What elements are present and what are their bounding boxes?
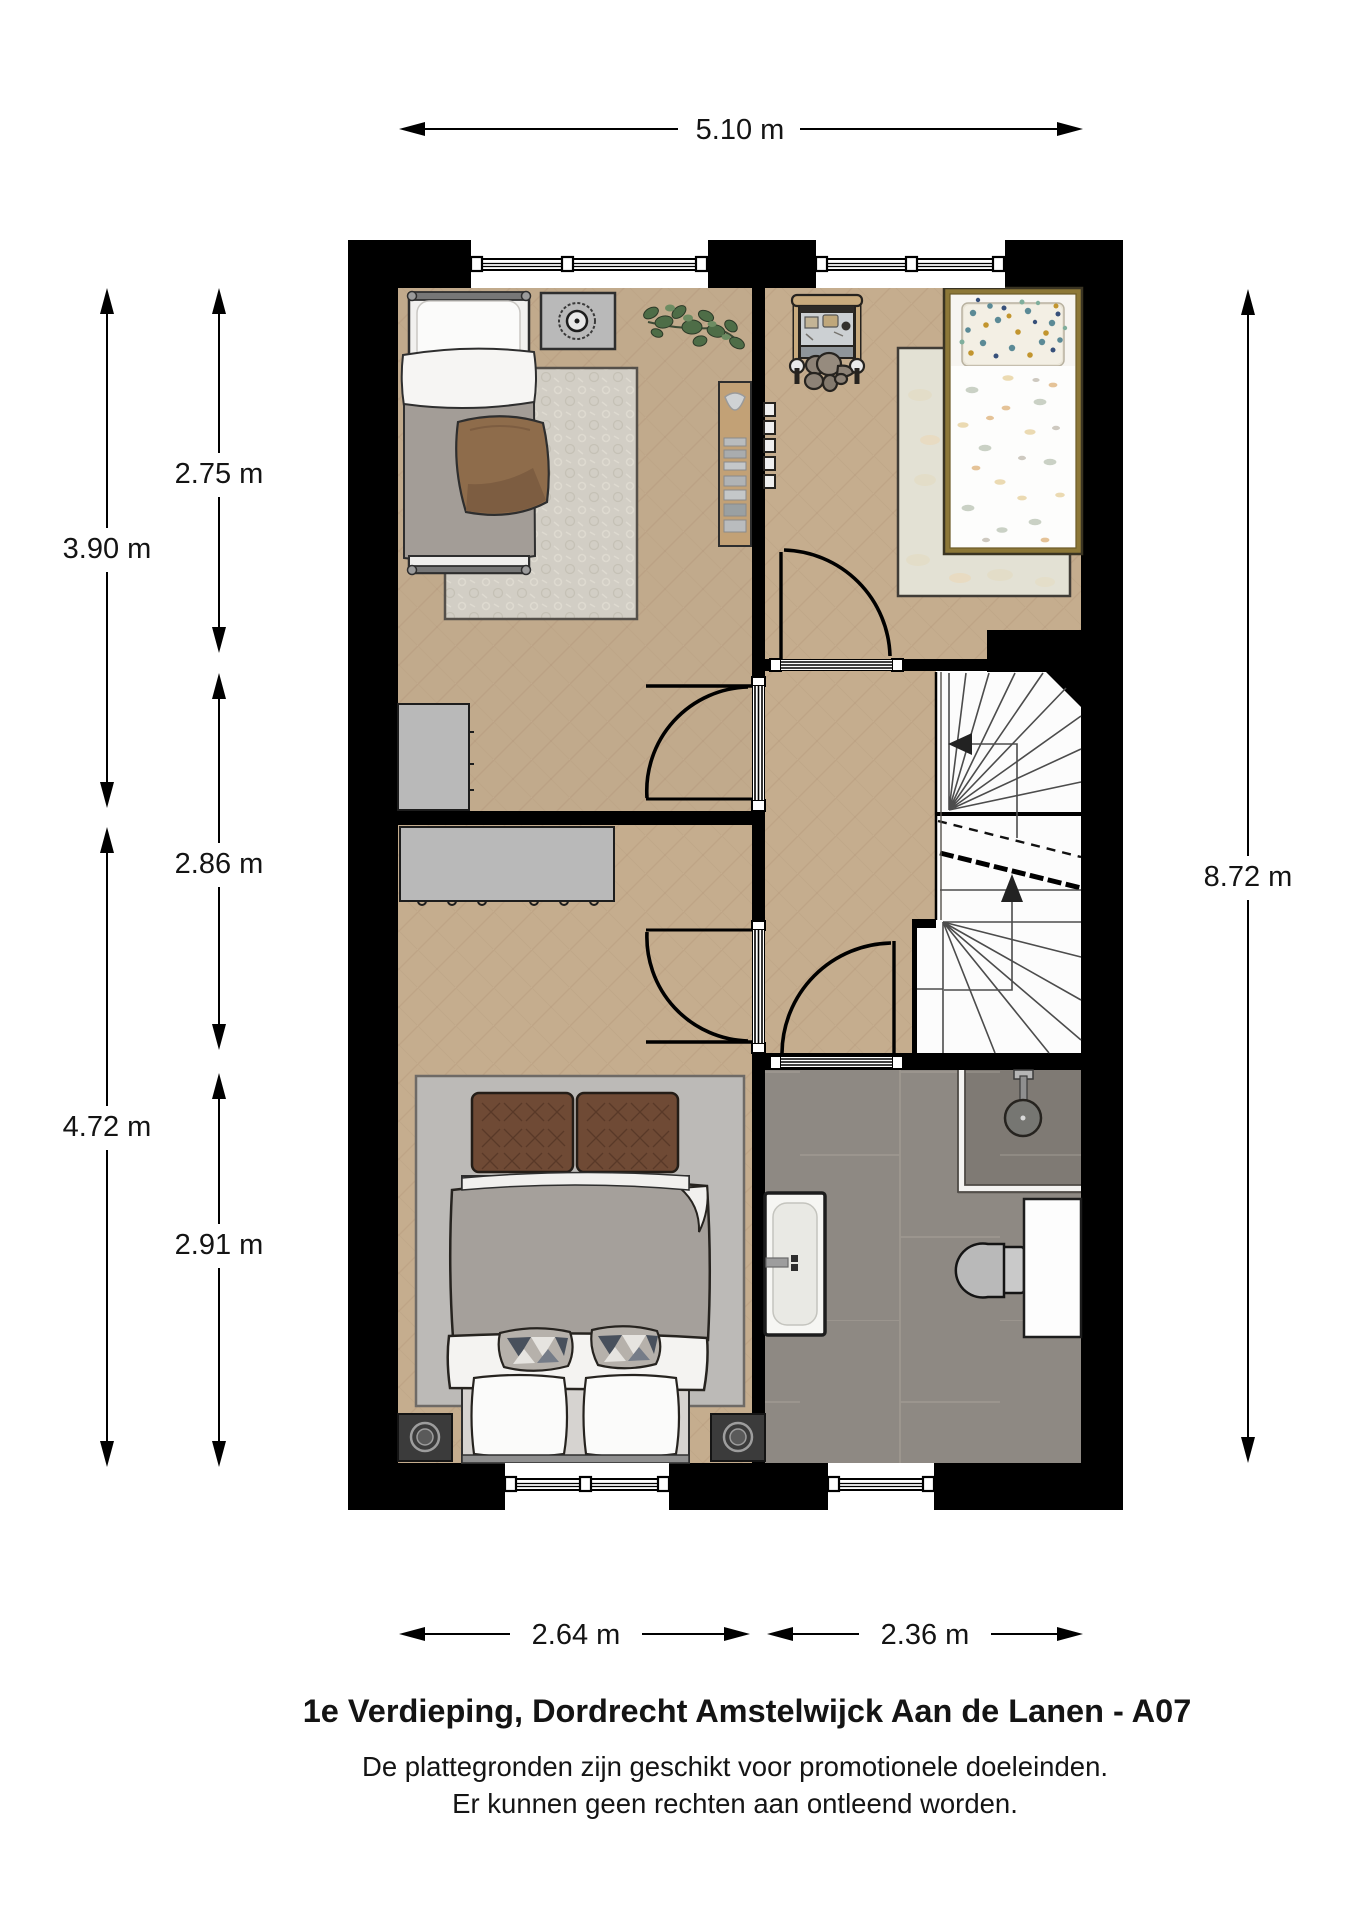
- svg-text:3.90 m: 3.90 m: [63, 533, 152, 565]
- svg-text:1e Verdieping, Dordrecht Amste: 1e Verdieping, Dordrecht Amstelwijck Aan…: [303, 1693, 1192, 1729]
- svg-text:Er kunnen geen rechten aan ont: Er kunnen geen rechten aan ontleend word…: [452, 1788, 1018, 1819]
- svg-text:8.72 m: 8.72 m: [1204, 861, 1293, 893]
- svg-text:2.91 m: 2.91 m: [175, 1229, 264, 1261]
- svg-text:5.10 m: 5.10 m: [696, 114, 785, 146]
- svg-text:4.72 m: 4.72 m: [63, 1111, 152, 1143]
- svg-text:2.75 m: 2.75 m: [175, 458, 264, 490]
- svg-text:De plattegronden zijn geschikt: De plattegronden zijn geschikt voor prom…: [362, 1751, 1108, 1782]
- svg-text:2.36 m: 2.36 m: [881, 1619, 970, 1651]
- svg-text:2.64 m: 2.64 m: [532, 1619, 621, 1651]
- svg-text:2.86 m: 2.86 m: [175, 848, 264, 880]
